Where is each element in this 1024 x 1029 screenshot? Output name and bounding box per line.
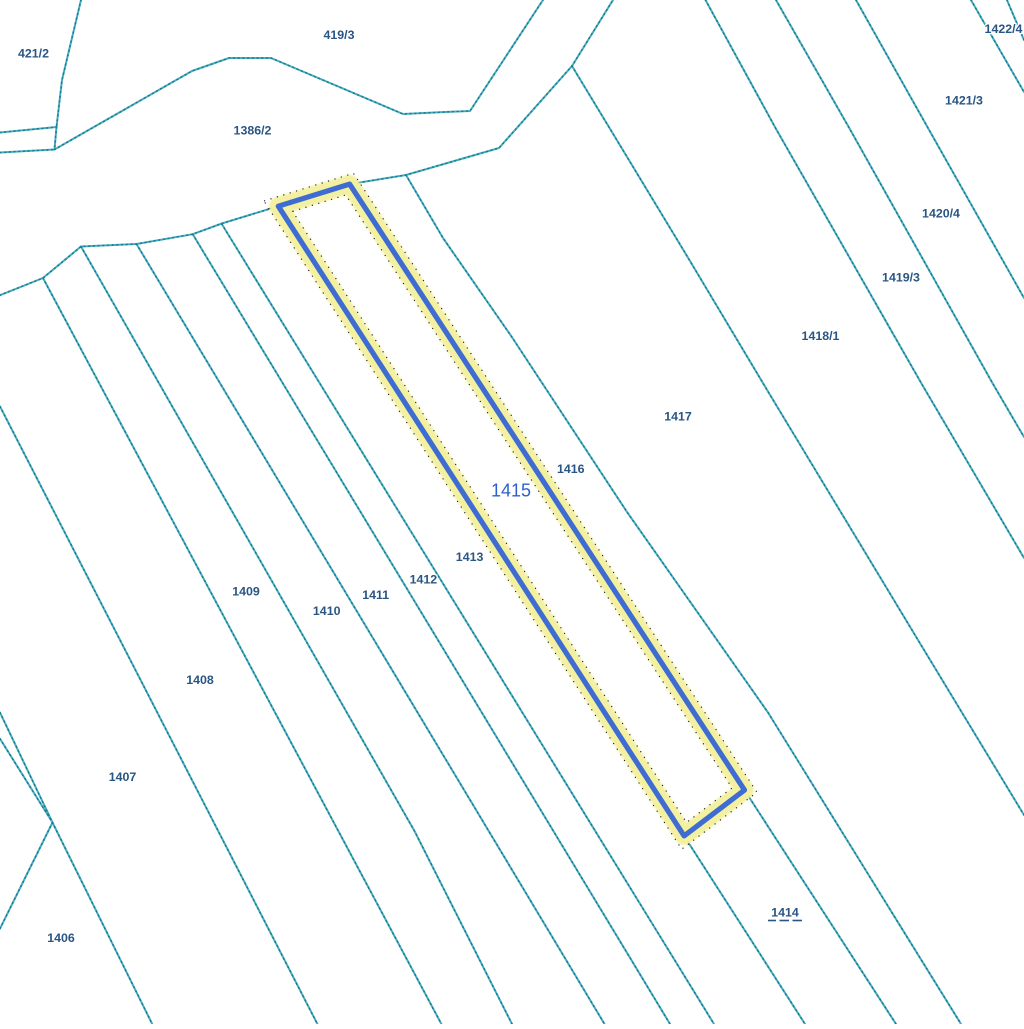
svg-text:1386/2: 1386/2 [234,124,272,138]
svg-text:1414: 1414 [771,906,799,920]
svg-text:1406: 1406 [47,931,75,945]
svg-text:1418/1: 1418/1 [802,329,840,343]
svg-text:1420/4: 1420/4 [922,207,960,221]
svg-text:1408: 1408 [186,673,214,687]
svg-text:421/2: 421/2 [18,47,49,61]
svg-text:1422/4: 1422/4 [985,22,1023,36]
svg-text:1419/3: 1419/3 [882,271,920,285]
svg-text:1421/3: 1421/3 [945,94,983,108]
svg-text:1416: 1416 [557,462,585,476]
svg-text:1407: 1407 [109,770,137,784]
svg-text:1411: 1411 [362,588,389,602]
svg-text:1417: 1417 [664,410,692,424]
svg-text:419/3: 419/3 [323,28,354,42]
svg-text:1412: 1412 [410,573,438,587]
svg-text:1410: 1410 [313,604,341,618]
svg-text:1415: 1415 [491,481,531,501]
svg-text:1413: 1413 [456,550,484,564]
svg-text:1409: 1409 [232,585,260,599]
